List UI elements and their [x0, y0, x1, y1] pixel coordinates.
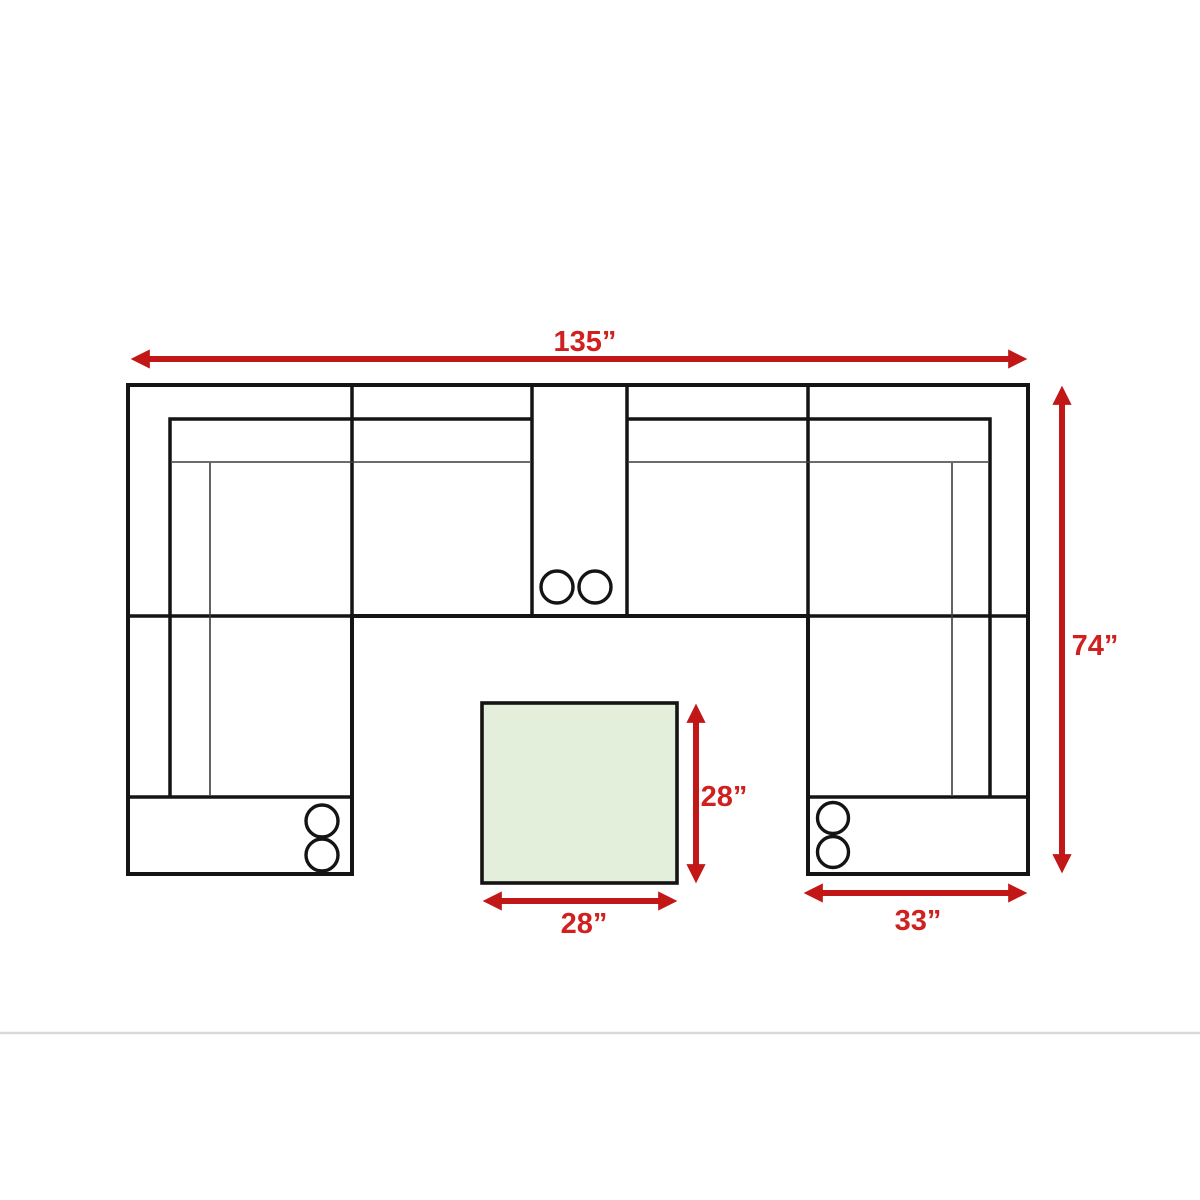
sectional-sofa-diagram: 135” 74” 28” 28” 33” [0, 0, 1200, 1200]
left-chaise-cupholder-icon-1 [306, 805, 338, 837]
diagram-page: 135” 74” 28” 28” 33” [0, 0, 1200, 1200]
right-chaise-cupholder-icon-2 [818, 837, 849, 868]
total-width-label: 135” [554, 326, 617, 358]
total-depth-label: 74” [1072, 630, 1119, 662]
ottoman [482, 703, 677, 883]
chaise-width-label: 33” [895, 905, 942, 937]
ottoman-width-label: 28” [561, 908, 608, 940]
ottoman-depth-label: 28” [701, 781, 748, 813]
right-chaise-cupholder-icon-1 [818, 803, 849, 834]
left-chaise-cupholder-icon-2 [306, 839, 338, 871]
console-cupholder-icon-2 [579, 571, 611, 603]
console-cupholder-icon-1 [541, 571, 573, 603]
